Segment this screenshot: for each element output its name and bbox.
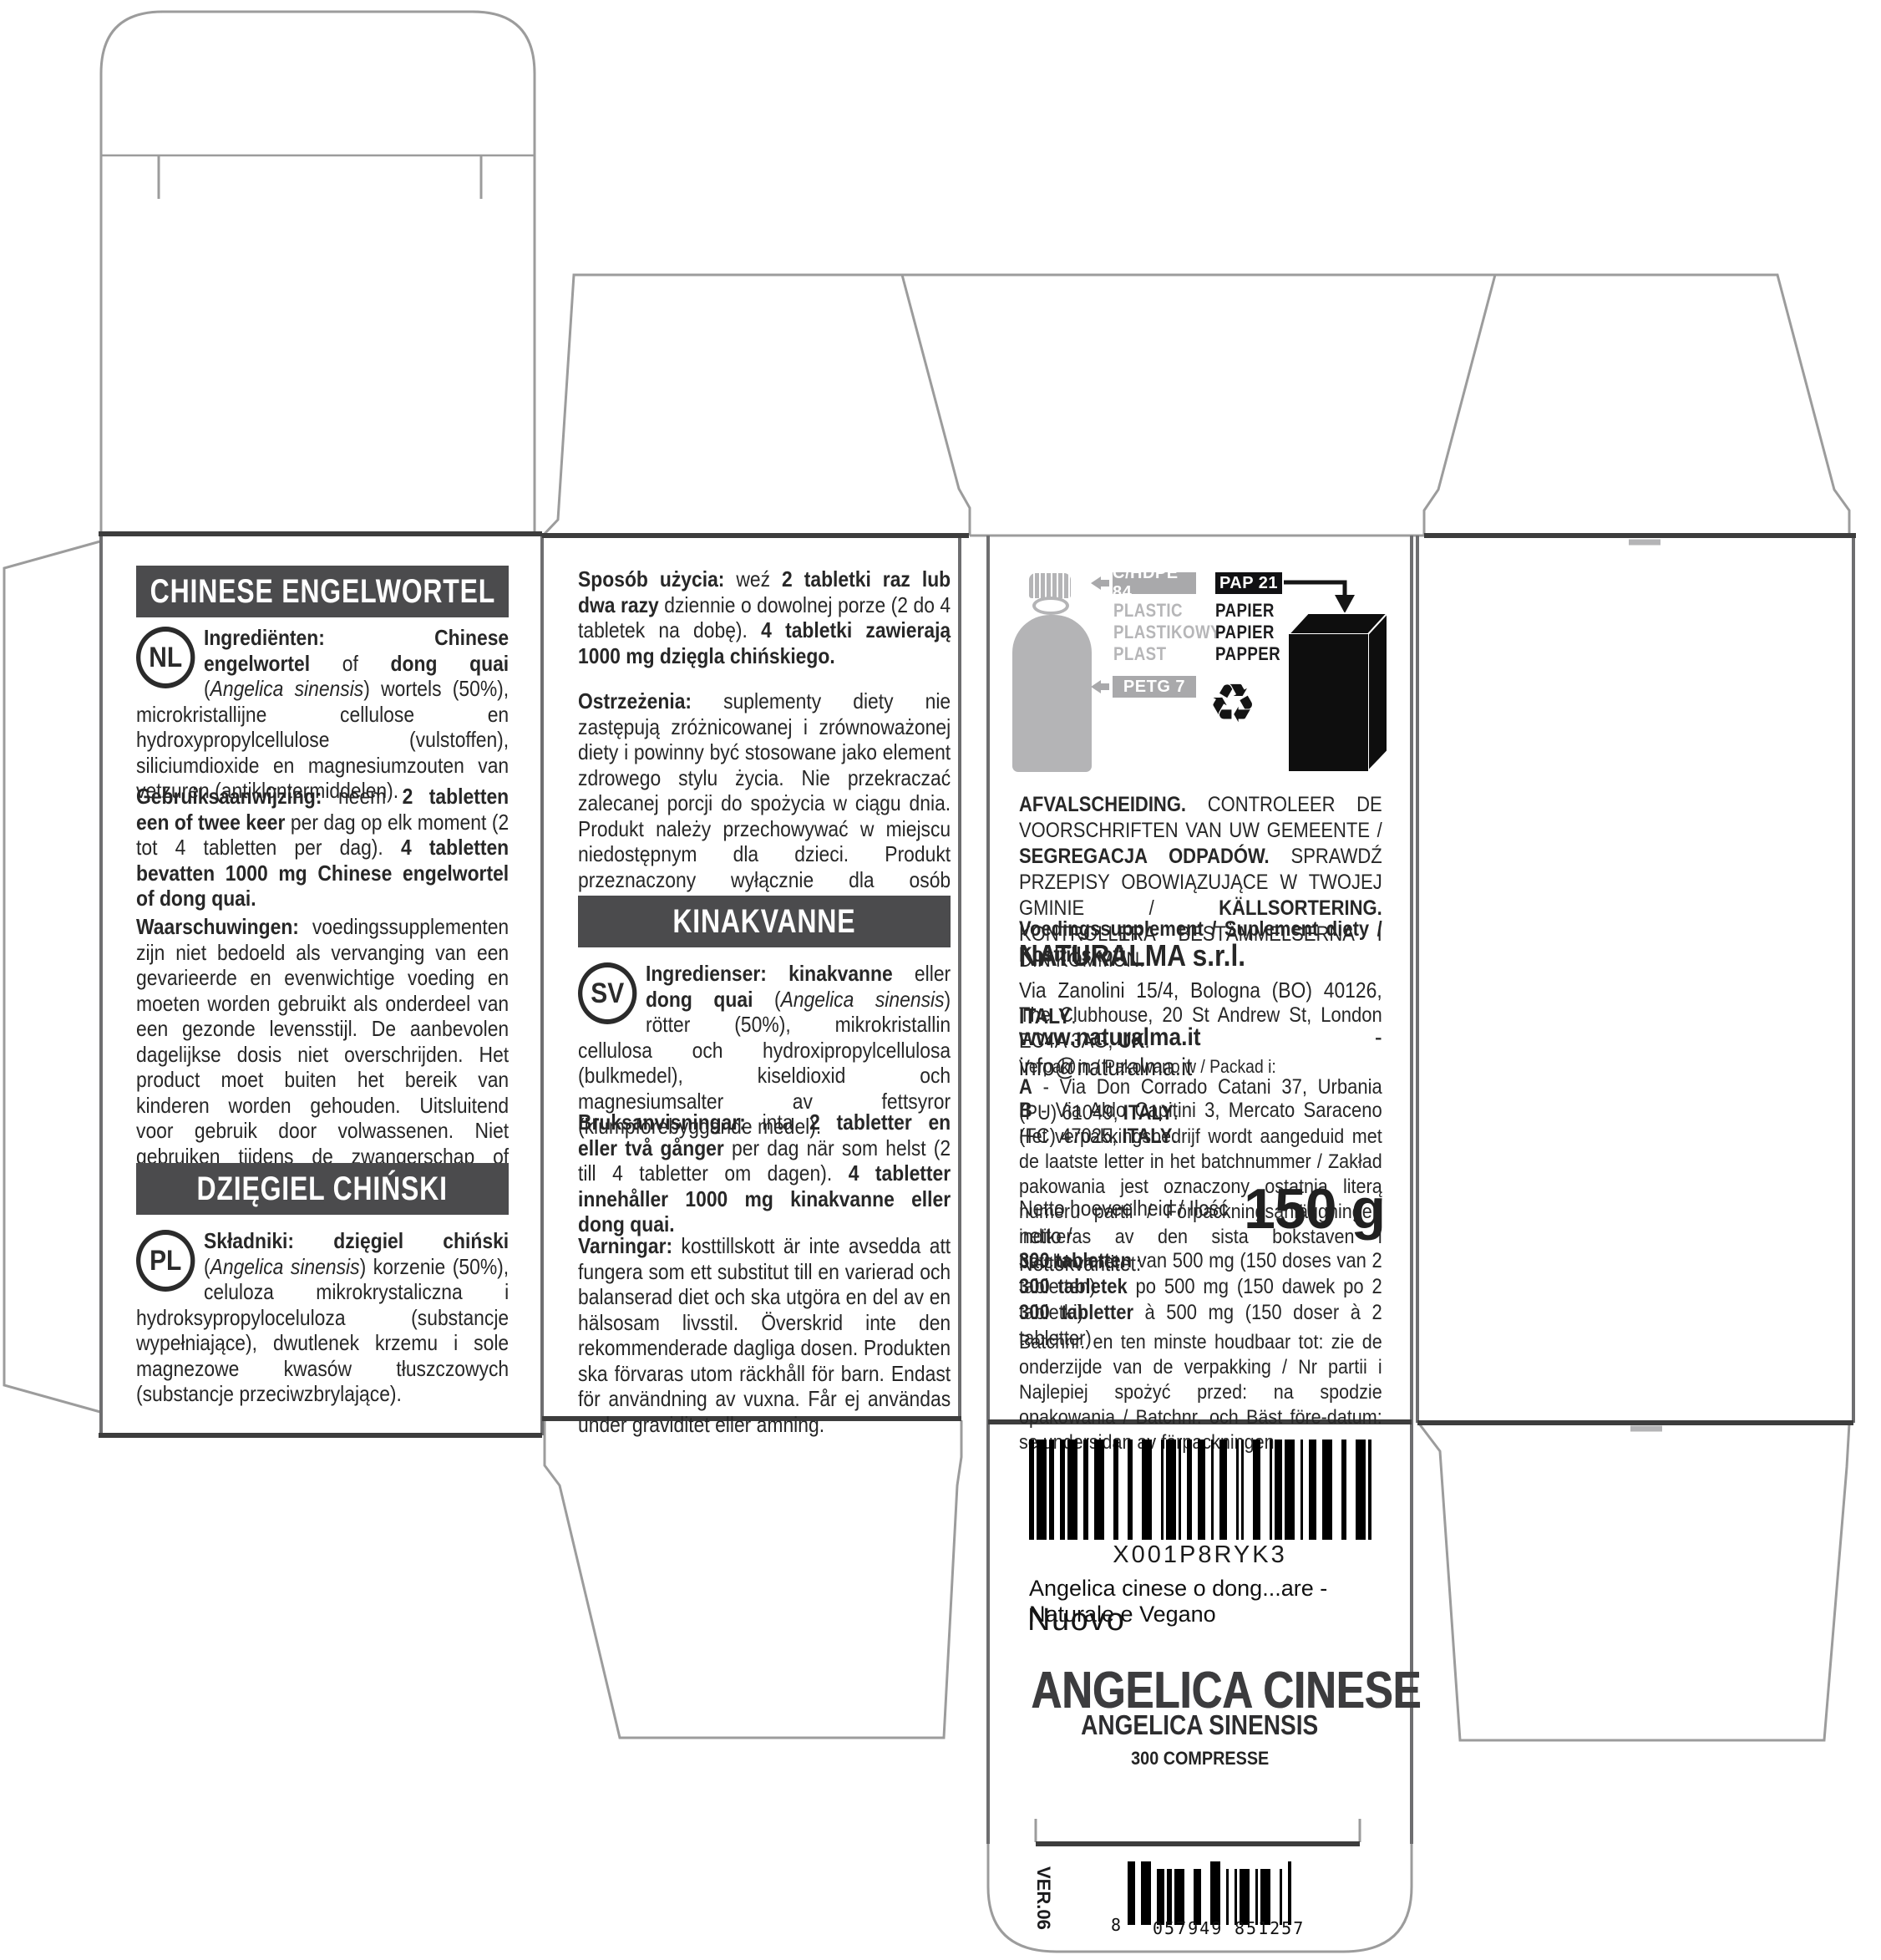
barcode-code-text: X001P8RYK3 [988, 1541, 1412, 1569]
company-name: NATURALMA s.r.l. [1019, 937, 1382, 974]
ean-group-1: 057949 [1153, 1918, 1223, 1938]
ean-group-2: 851257 [1235, 1918, 1305, 1938]
product-latin-name: ANGELICA SINENSIS [1081, 1709, 1318, 1741]
net-quantity-value: 150 g [1221, 1176, 1385, 1242]
version-code: VER.06 [1032, 1866, 1054, 1930]
amazon-barcode [1029, 1440, 1371, 1540]
listing-condition-badge: Nuovo [1027, 1602, 1278, 1638]
packaging-dieline: CHINESE ENGELWORTEL NL Ingrediënten: Chi… [0, 0, 1881, 1960]
product-latin-wrap: ANGELICA SINENSIS [988, 1709, 1412, 1741]
product-count: 300 COMPRESSE [1131, 1748, 1269, 1770]
product-count-wrap: 300 COMPRESSE [988, 1748, 1412, 1770]
ean-barcode [1128, 1861, 1291, 1925]
carton-box-graphic [0, 0, 1881, 1960]
batch-bestbefore-note: Batchnr. en ten minste houdbaar tot: zie… [1019, 1330, 1382, 1455]
ean-digit-first: 8 [1111, 1915, 1123, 1935]
